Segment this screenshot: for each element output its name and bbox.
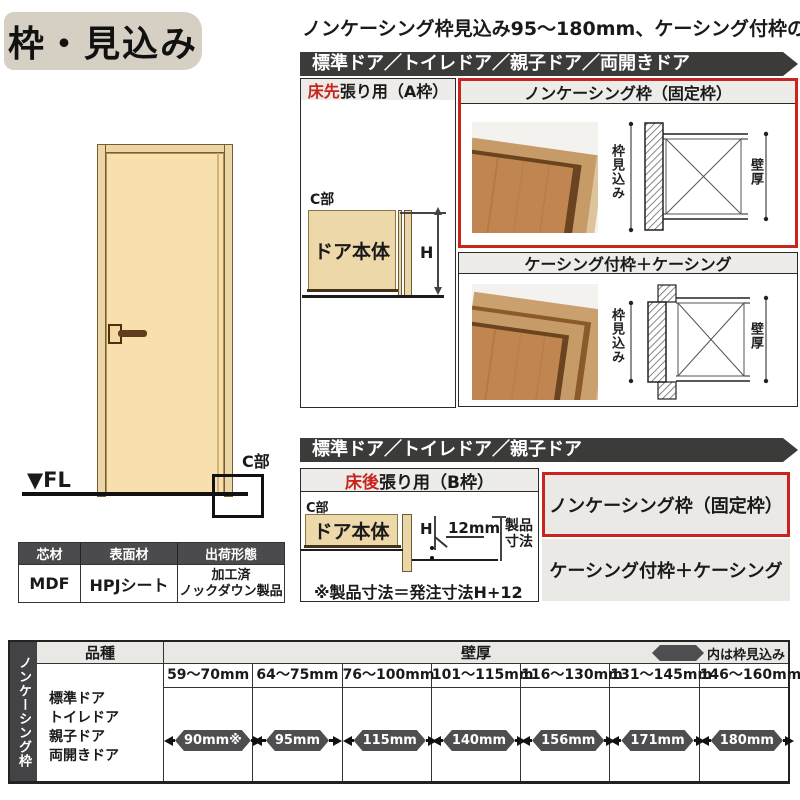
- materials-shipping-line2: ノックダウン製品: [179, 584, 282, 600]
- frame-depth-value-row: 180mm: [700, 730, 788, 751]
- spec-kind-header: 品種: [37, 642, 164, 664]
- spec-kind-list: 標準ドア トイレドア 親子ドア 両開きドア: [37, 664, 164, 781]
- floor-level-label: ▼FL: [27, 468, 71, 492]
- panel-b-header: 床後張り用（B枠）: [300, 468, 539, 492]
- door-kind-item: トイレドア: [49, 709, 163, 728]
- materials-value-row: MDF HPJシート 加工済 ノックダウン製品: [19, 564, 284, 602]
- spec-wall-header: 壁厚 内は枠見込み: [164, 642, 788, 664]
- spec-column: 64～75mm 95mm: [253, 664, 342, 781]
- c-part-highlight-square: [212, 474, 264, 518]
- frame-depth-badge: 140mm: [443, 730, 515, 751]
- frame-depth-value-row: 156mm: [521, 730, 609, 751]
- panel-b-title-rest: 張り用（B枠）: [379, 468, 494, 493]
- door-kind-item: 両開きドア: [49, 747, 163, 766]
- materials-header-core: 芯材: [19, 543, 81, 564]
- spec-column: 101～115mm 140mm: [432, 664, 521, 781]
- materials-surface-value: HPJシート: [81, 564, 178, 602]
- spec-side-label: ノンケーシング枠: [14, 656, 33, 768]
- materials-shipping-line1: 加工済: [211, 568, 250, 584]
- door-handle-lever: [118, 330, 147, 337]
- panel-a-dim-line: [437, 214, 439, 290]
- frame-depth-value-row: 140mm: [432, 730, 520, 751]
- arrow-left-icon: [610, 736, 619, 746]
- wall-range: 146～160mm: [700, 664, 788, 688]
- frame-depth-value-row: 95mm: [253, 730, 341, 751]
- panel-b-product-dim-line: [500, 516, 502, 561]
- panel-b-height-dim-line: [434, 516, 436, 550]
- spec-column: 76～100mm 115mm: [343, 664, 432, 781]
- frame-depth-spec-table: ノンケーシング枠 品種 壁厚 内は枠見込み 標準ドア トイレドア 親子ドア 両開…: [8, 640, 790, 784]
- panel-b-door-body-box: ドア本体: [305, 514, 398, 547]
- wall-thickness-label-2: 壁厚: [746, 322, 765, 364]
- frame-depth-badge: 115mm: [354, 730, 426, 751]
- frame-depth-label-2: 枠見込み: [607, 308, 626, 374]
- arrow-up-icon: [434, 207, 442, 215]
- panel-b-gap-underline: [446, 536, 484, 538]
- panel-b-door-bottom-line: [304, 545, 401, 548]
- frame-depth-value-row: 90mm※: [164, 730, 252, 751]
- b-casing-option-box: ケーシング付枠＋ケーシング: [542, 539, 790, 601]
- b-casing-option-label: ケーシング付枠＋ケーシング: [549, 557, 782, 583]
- panel-b-product-dim-label: 製品 寸法: [505, 518, 533, 550]
- arrow-left-icon: [700, 736, 709, 746]
- panel-a-door-body-box: ドア本体: [308, 210, 396, 290]
- frame-depth-badge: 171mm: [621, 730, 693, 751]
- hexagon-badge-icon: [652, 645, 704, 661]
- door-slab: [106, 153, 224, 493]
- arrow-line: [530, 739, 532, 742]
- panel-a-frame-strip-1: [398, 210, 402, 297]
- panel-a-door-bottom-line: [307, 289, 398, 292]
- frame-depth-badge: 180mm: [711, 730, 783, 751]
- frame-depth-badge: 95mm: [266, 730, 329, 751]
- panel-a-title-rest: 張り用（A枠）: [340, 78, 448, 102]
- materials-header-surface: 表面材: [81, 543, 178, 564]
- spec-legend-label: 内は枠見込み: [707, 644, 785, 663]
- door-types-bar-a: 標準ドア／トイレドア／親子ドア／両開きドア: [300, 52, 798, 76]
- wall-range: 59～70mm: [164, 664, 252, 688]
- frame-depth-badge: 90mm※: [175, 730, 251, 751]
- frame-depth-badge: 156mm: [532, 730, 604, 751]
- page-heading: ノンケーシング枠見込み95～180mm、ケーシング付枠の場合: [302, 16, 798, 42]
- wall-thickness-label-1: 壁厚: [746, 158, 765, 200]
- door-types-bar-b: 標準ドア／トイレドア／親子ドア: [300, 438, 798, 462]
- spec-column: 59～70mm 90mm※: [164, 664, 253, 781]
- panel-b-product-dim-tick: [492, 516, 506, 518]
- arrow-line: [352, 739, 354, 742]
- panel-b-note: ※製品寸法＝発注寸法H+12: [314, 579, 523, 603]
- arrow-line: [441, 739, 443, 742]
- arrow-right-icon: [785, 736, 794, 746]
- panel-b-frame-strip: [402, 514, 412, 572]
- frame-depth-value-row: 115mm: [343, 730, 431, 751]
- panel-b-door-body-label: ドア本体: [313, 517, 389, 544]
- materials-table: 芯材 表面材 出荷形態 MDF HPJシート 加工済 ノックダウン製品: [18, 542, 285, 603]
- spec-legend: 内は枠見込み: [652, 642, 785, 664]
- spec-side-strip: ノンケーシング枠: [10, 642, 37, 781]
- panel-b-height-label: H: [420, 520, 433, 538]
- catalog-page: 枠・見込み ノンケーシング枠見込み95～180mm、ケーシング付枠の場合 標準ド…: [0, 0, 800, 800]
- product-dim-line1: 製品: [505, 518, 533, 534]
- product-dim-line2: 寸法: [505, 534, 533, 550]
- arrow-line: [619, 739, 621, 742]
- spec-columns: 59～70mm 90mm※ 64～75mm 95mm 76～100mm: [164, 664, 788, 781]
- page-title: 枠・見込み: [8, 15, 198, 67]
- casing-frame-title: ケーシング付枠＋ケーシング: [458, 252, 798, 274]
- panel-a-height-label: H: [420, 243, 433, 262]
- door-kind-item: 標準ドア: [49, 690, 163, 709]
- door-frame-top: [97, 144, 233, 153]
- door-edge-line: [217, 153, 219, 493]
- door-frame-right-jamb: [224, 144, 233, 497]
- panel-b-floor-upper-line: [301, 549, 403, 551]
- arrow-right-icon: [333, 736, 342, 746]
- wall-range: 101～115mm: [432, 664, 520, 688]
- page-title-block: 枠・見込み: [4, 12, 202, 70]
- spec-wall-header-label: 壁厚: [461, 642, 491, 663]
- door-kind-item: 親子ドア: [49, 728, 163, 747]
- arrow-line: [262, 739, 266, 742]
- panel-a-c-part-label: C部: [310, 189, 334, 209]
- arrow-line: [709, 739, 711, 742]
- frame-depth-value-row: 171mm: [610, 730, 698, 751]
- panel-b-title-red: 床後: [345, 468, 379, 493]
- panel-a-header: 床先張り用（A枠）: [300, 78, 456, 101]
- materials-shipping-value: 加工済 ノックダウン製品: [178, 564, 284, 602]
- spec-column: 116～130mm 156mm: [521, 664, 610, 781]
- wall-range: 116～130mm: [521, 664, 609, 688]
- arrow-left-icon: [432, 736, 441, 746]
- spec-column: 131～145mm 171mm: [610, 664, 699, 781]
- c-part-label: C部: [242, 448, 270, 472]
- arrow-down-icon: [434, 287, 442, 295]
- spec-column: 146～160mm 180mm: [700, 664, 788, 781]
- panel-a-floor-line: [302, 295, 444, 298]
- panel-b-floor-lower-line: [412, 559, 498, 561]
- panel-b-gap-dot-upper: [430, 546, 434, 550]
- panel-b-gap-label: 12mm: [448, 519, 500, 537]
- arrow-left-icon: [253, 736, 262, 746]
- door-corner-photo-casing: [472, 284, 598, 400]
- door-corner-photo-noncasing: [472, 122, 598, 233]
- noncasing-frame-title: ノンケーシング枠（固定枠）: [461, 81, 795, 104]
- arrow-left-icon: [164, 736, 173, 746]
- wall-range: 131～145mm: [610, 664, 698, 688]
- materials-header-row: 芯材 表面材 出荷形態: [19, 543, 284, 564]
- frame-depth-label-1: 枠見込み: [607, 144, 626, 210]
- arrow-left-icon: [521, 736, 530, 746]
- materials-header-shipping: 出荷形態: [178, 543, 284, 564]
- b-noncasing-option-label: ノンケーシング枠（固定枠）: [549, 492, 783, 518]
- panel-b-gap-dot-lower: [430, 556, 434, 560]
- door-frame-left-jamb: [97, 144, 106, 497]
- panel-a-door-body-label: ドア本体: [314, 237, 390, 264]
- panel-a-frame-strip-2: [404, 210, 412, 297]
- panel-a-title-red: 床先: [308, 78, 340, 102]
- b-noncasing-option-box: ノンケーシング枠（固定枠）: [542, 472, 790, 537]
- arrow-line: [173, 739, 175, 742]
- materials-core-value: MDF: [19, 564, 81, 602]
- arrow-left-icon: [343, 736, 352, 746]
- wall-range: 76～100mm: [343, 664, 431, 688]
- wall-range: 64～75mm: [253, 664, 341, 688]
